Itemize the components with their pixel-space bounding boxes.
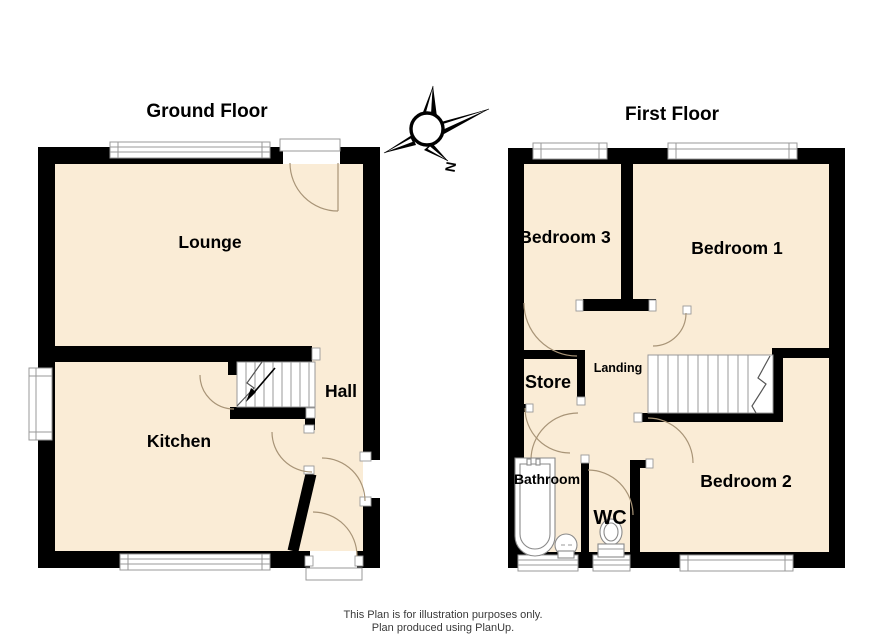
landing-label: Landing <box>594 361 643 375</box>
bedroom1-window <box>668 143 797 159</box>
bedroom3-label: Bedroom 3 <box>519 227 611 247</box>
first-floor-plan: First Floor <box>508 104 845 571</box>
kitchen-label: Kitchen <box>147 431 211 451</box>
ground-floor-title: Ground Floor <box>146 101 268 122</box>
kitchen-side-window <box>29 368 52 440</box>
lounge-label: Lounge <box>178 232 241 252</box>
bedroom1-label: Bedroom 1 <box>691 238 783 258</box>
bedroom2-window <box>680 555 793 571</box>
bedroom3-window <box>533 143 607 159</box>
hall-label: Hall <box>325 381 357 401</box>
bedroom2-label: Bedroom 2 <box>700 471 792 491</box>
sink <box>555 534 577 558</box>
front-door-recess <box>280 139 340 151</box>
floor-plan-drawing: Ground Floor <box>0 0 886 644</box>
back-door-recess <box>306 568 362 580</box>
wc-label: WC <box>593 507 626 529</box>
store-label: Store <box>525 372 571 392</box>
compass-north-label: N <box>442 161 460 174</box>
footer-line-1: This Plan is for illustration purposes o… <box>343 609 542 621</box>
back-door-opening <box>310 551 357 568</box>
kitchen-window <box>120 554 270 570</box>
ground-floor-stairs <box>237 362 315 407</box>
footer-disclaimer: This Plan is for illustration purposes o… <box>343 609 542 634</box>
compass-circle <box>411 113 443 145</box>
bathroom-label: Bathroom <box>514 471 580 487</box>
floor-plan-page: Ground Floor <box>0 0 886 644</box>
compass-rose: N <box>384 86 489 173</box>
first-floor-title: First Floor <box>625 104 720 125</box>
lounge-window <box>110 142 270 158</box>
first-floor-stairs <box>648 355 773 413</box>
ground-floor-plan: Ground Floor <box>29 101 380 580</box>
footer-line-2: Plan produced using PlanUp. <box>372 622 514 634</box>
hall-side-opening <box>363 460 380 498</box>
